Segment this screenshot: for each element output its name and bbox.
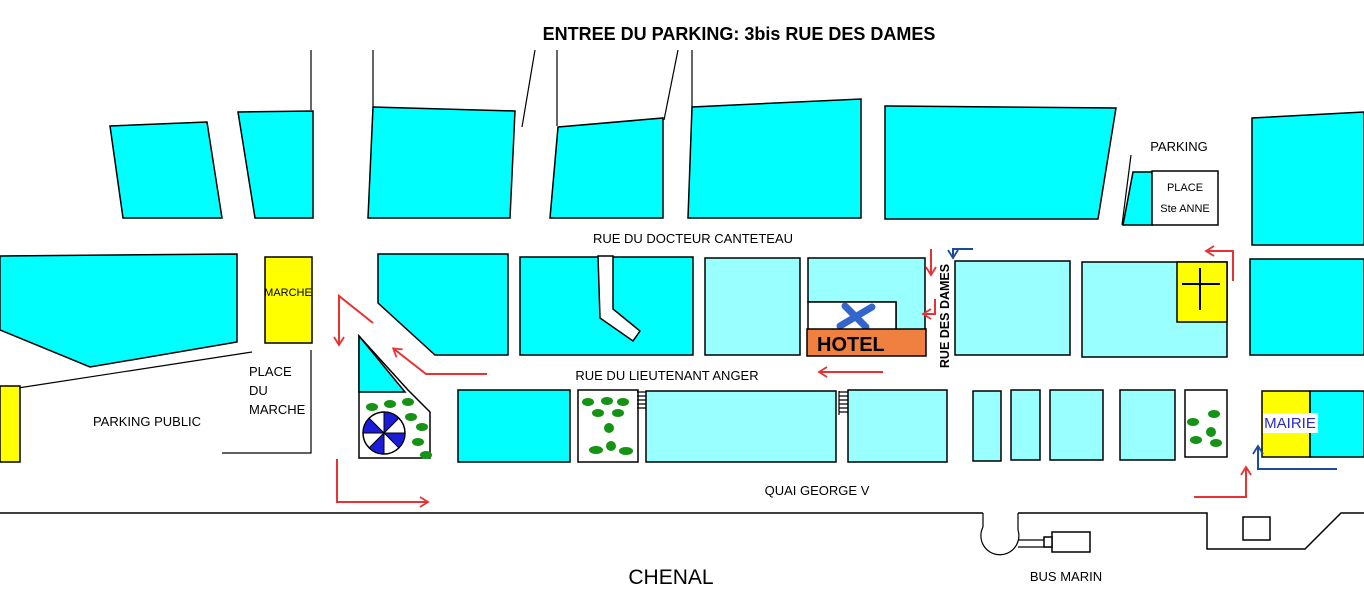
- boat-bow: [1044, 537, 1052, 547]
- city-block: [973, 391, 1001, 461]
- tree-icon: [612, 409, 624, 417]
- yellow-strip-block: [0, 386, 20, 462]
- parking-public-label: PARKING PUBLIC: [93, 414, 201, 429]
- city-block: [378, 254, 508, 355]
- route-arrow-down-market: [339, 296, 373, 344]
- stairs-icon: [839, 391, 848, 415]
- map-canvas: PARKING PLACE Ste ANNE MARCHE PLACE DU M…: [0, 0, 1364, 611]
- tree-icon: [420, 451, 432, 459]
- place-du-marche-label-line2: DU: [249, 383, 268, 398]
- boat-icon: [1052, 532, 1090, 552]
- parking-label: PARKING: [1150, 139, 1208, 154]
- city-block: [0, 254, 237, 367]
- tree-icon: [1210, 439, 1222, 447]
- tree-icon: [1208, 410, 1220, 418]
- chenal-label: CHENAL: [628, 566, 713, 589]
- city-block: [1252, 112, 1364, 245]
- tree-icon: [589, 446, 603, 454]
- tree-icon: [1206, 427, 1216, 437]
- city-block: [1050, 390, 1103, 460]
- tree-icon: [592, 409, 604, 417]
- bus-marin-pier: [981, 513, 1090, 555]
- pier-walkway: [983, 513, 1018, 530]
- tree-icon: [619, 447, 633, 455]
- city-block: [646, 391, 836, 462]
- tree-icon: [402, 398, 414, 406]
- city-block: [885, 106, 1116, 219]
- tree-icon: [405, 413, 417, 421]
- city-block: [368, 107, 515, 218]
- place-ste-anne-label-line2: Ste ANNE: [1160, 203, 1210, 215]
- tree-icon: [604, 423, 614, 433]
- route-arrow-right-quai: [337, 459, 427, 502]
- tree-icon: [617, 398, 629, 406]
- church-building: [1177, 262, 1227, 322]
- city-block: [688, 99, 861, 218]
- city-block: [359, 336, 405, 392]
- hotel-label: HOTEL: [817, 334, 885, 356]
- city-block: [458, 390, 570, 462]
- city-block: [238, 111, 313, 218]
- place-ste-anne-box: [1152, 171, 1218, 225]
- place-ste-anne-area: PARKING PLACE Ste ANNE: [1122, 139, 1218, 225]
- city-block: [848, 390, 947, 462]
- quay-area: QUAI GEORGE V CHENAL BUS MARIN: [0, 483, 1364, 589]
- city-block: [550, 118, 663, 218]
- street-anger-label: RUE DU LIEUTENANT ANGER: [575, 368, 758, 383]
- city-block: [955, 261, 1070, 355]
- tree-icon: [1187, 418, 1199, 426]
- hotel-block: HOTEL: [807, 258, 926, 356]
- route-arrow-blue-dames: [953, 249, 973, 257]
- city-block: [705, 258, 800, 355]
- bus-marin-label: BUS MARIN: [1030, 569, 1102, 584]
- tree-icon: [366, 403, 378, 411]
- place-du-marche-label-line1: PLACE: [249, 364, 292, 379]
- city-block: [1250, 259, 1364, 355]
- city-block: [1120, 390, 1175, 460]
- tree-icon: [582, 398, 594, 406]
- tree-icon: [601, 397, 613, 405]
- page-title: ENTREE DU PARKING: 3bis RUE DES DAMES: [543, 24, 936, 44]
- tree-icon: [1190, 436, 1202, 444]
- place-ste-anne-label-line1: PLACE: [1167, 182, 1203, 194]
- street-canteteau-label: RUE DU DOCTEUR CANTETEAU: [593, 231, 793, 246]
- mairie-block: MAIRIE: [1262, 391, 1364, 457]
- quay-edge: [0, 513, 1364, 549]
- dock-square: [1243, 517, 1270, 540]
- city-block: [1310, 391, 1364, 457]
- marche-label: MARCHE: [264, 287, 312, 299]
- tree-icon: [416, 423, 428, 431]
- city-block: [110, 122, 222, 218]
- church-block: [1177, 262, 1227, 322]
- quai-george-v-label: QUAI GEORGE V: [765, 483, 870, 498]
- tree-icon: [384, 400, 396, 408]
- city-map: PARKING PLACE Ste ANNE MARCHE PLACE DU M…: [0, 0, 1364, 611]
- round-pier: [981, 527, 1019, 555]
- route-arrow-up-quai: [1194, 468, 1246, 497]
- carousel-icon: [363, 412, 405, 454]
- place-du-marche-label-line3: MARCHE: [249, 402, 306, 417]
- marche-block: [265, 257, 312, 343]
- tree-icon: [412, 438, 424, 446]
- mairie-label: MAIRIE: [1264, 415, 1316, 432]
- tree-icon: [606, 441, 616, 451]
- street-dames-label: RUE DES DAMES: [938, 264, 952, 368]
- city-block: [1011, 390, 1040, 460]
